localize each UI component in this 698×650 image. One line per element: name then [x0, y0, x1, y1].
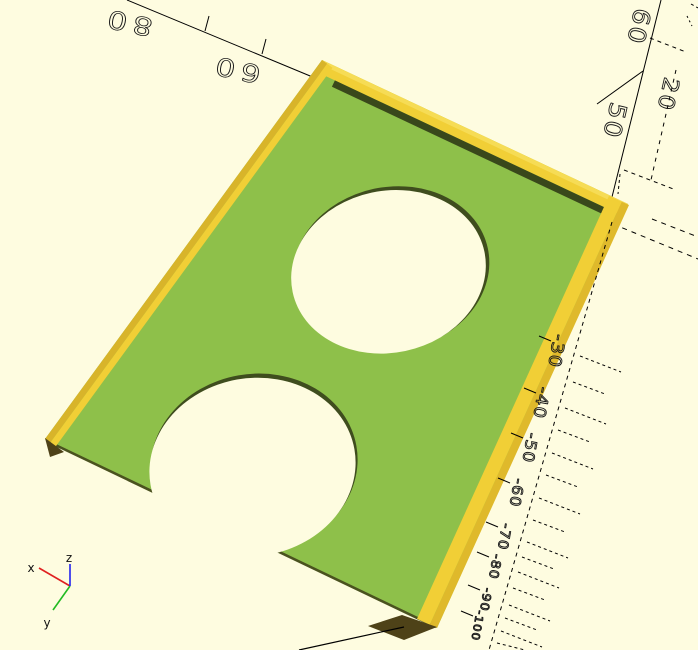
nav-z-label: z — [66, 551, 72, 565]
viewport-canvas[interactable]: 80 60 60 20 50 -30 -40 -50 -60 -70 -80 -… — [0, 0, 698, 650]
nav-x-label: x — [27, 561, 34, 575]
3d-scene[interactable]: 80 60 60 20 50 -30 -40 -50 -60 -70 -80 -… — [0, 0, 698, 650]
nav-y-label: y — [43, 616, 50, 630]
